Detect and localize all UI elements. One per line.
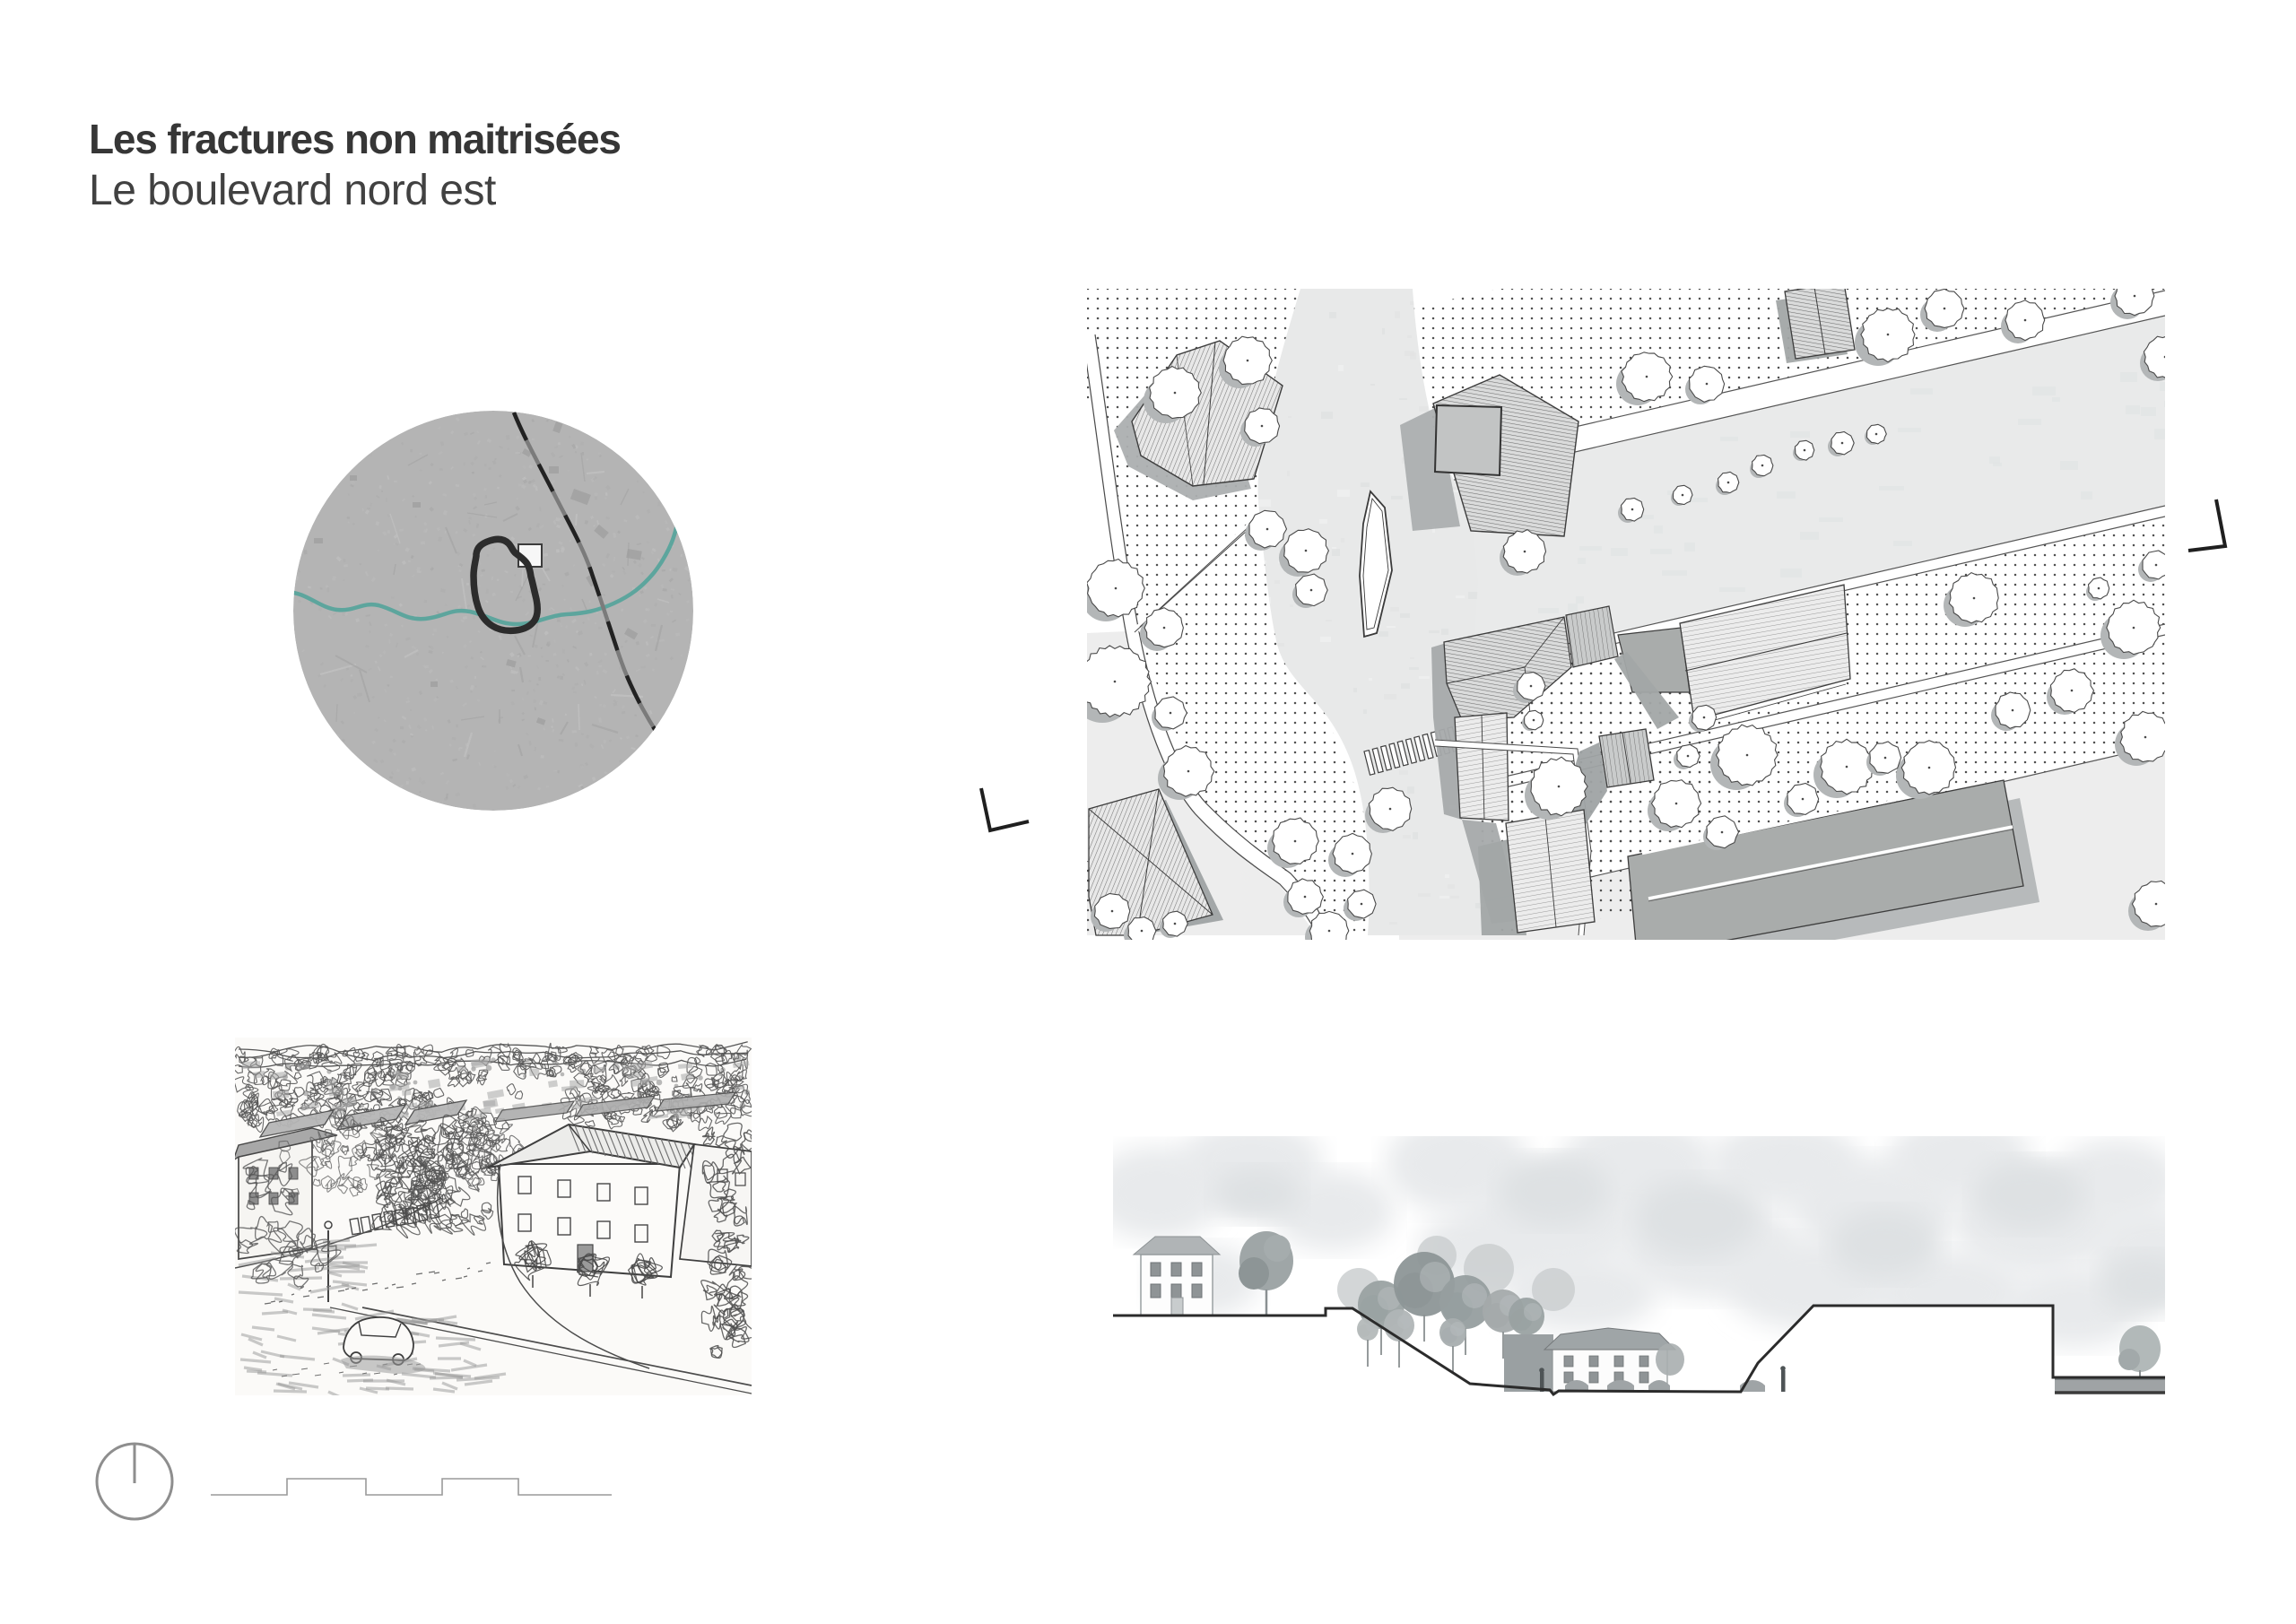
svg-text:Les fractures non maitrisées: Les fractures non maitrisées <box>89 116 621 162</box>
svg-text:Le boulevard nord est: Le boulevard nord est <box>89 167 496 214</box>
